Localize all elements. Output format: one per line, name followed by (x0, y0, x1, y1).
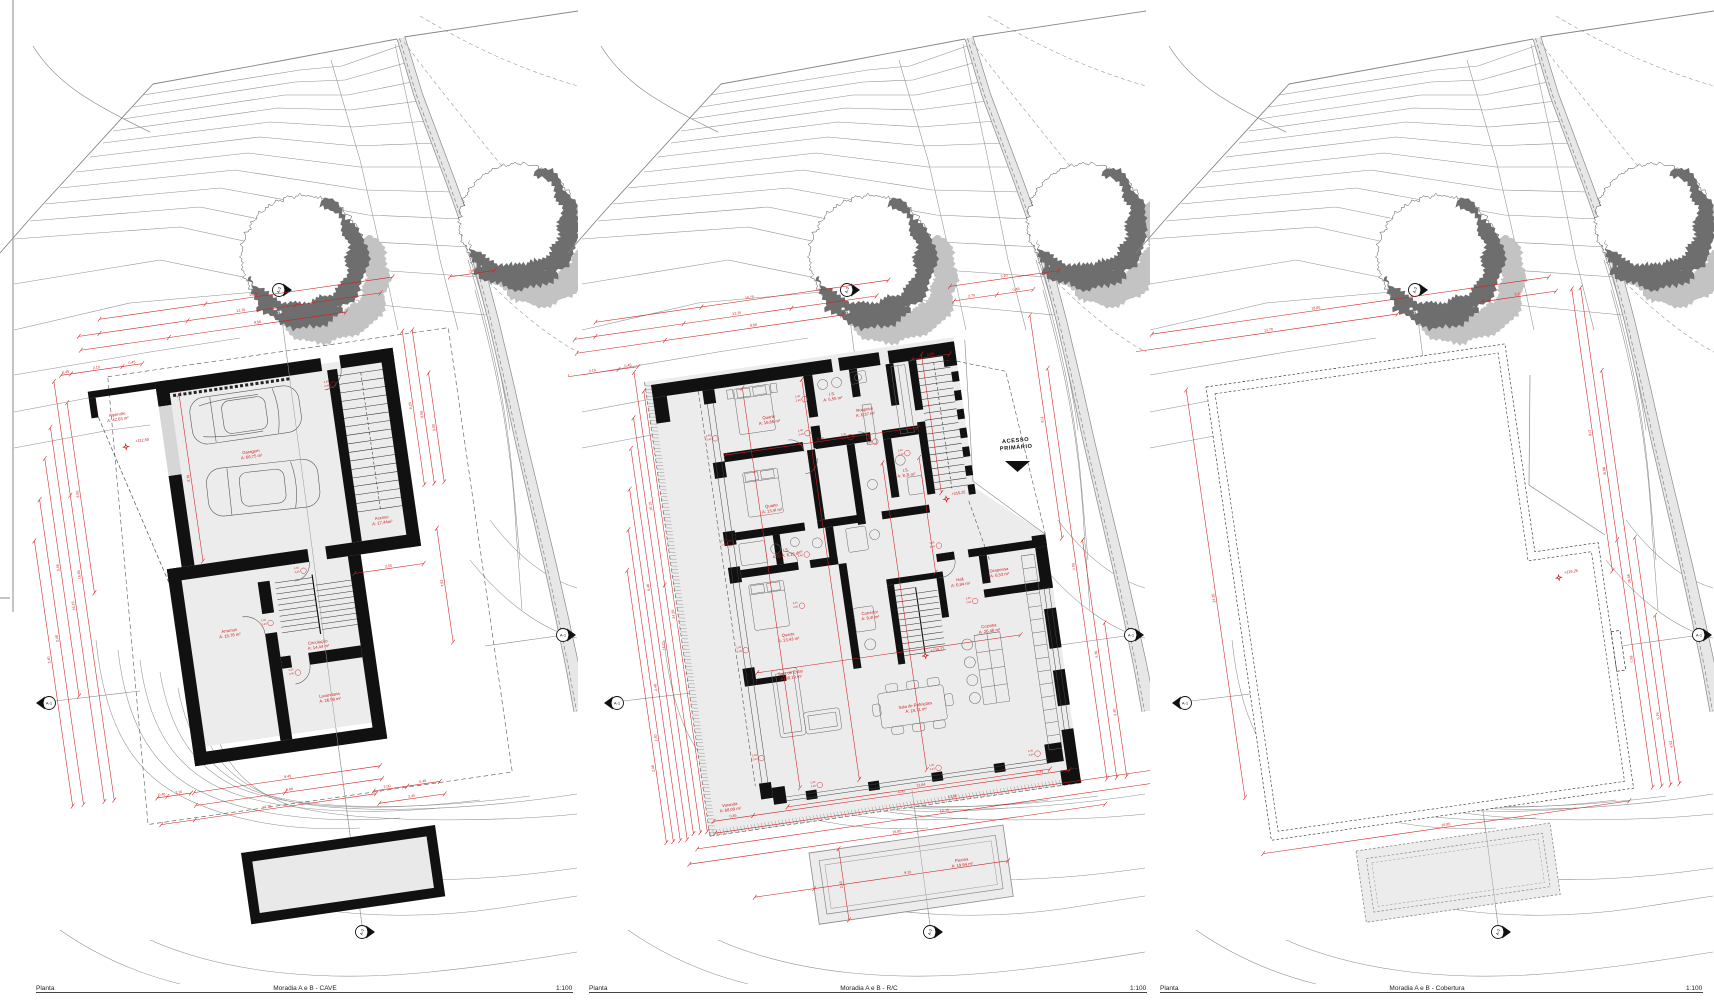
svg-text:Planta: Planta (1160, 985, 1179, 992)
svg-text:Planta: Planta (589, 985, 608, 992)
svg-text:Moradia A e B - R/C: Moradia A e B - R/C (840, 985, 898, 992)
svg-text:1:100: 1:100 (1130, 985, 1147, 992)
svg-text:1:100: 1:100 (1686, 985, 1703, 992)
svg-text:Moradia A e B - CAVE: Moradia A e B - CAVE (273, 985, 337, 992)
svg-text:Planta: Planta (36, 985, 55, 992)
svg-text:8,I2: 8,I2 (1588, 429, 1593, 436)
svg-text:8,I2: 8,I2 (1040, 416, 1045, 423)
svg-text:Moradia A e B - Cobertura: Moradia A e B - Cobertura (1389, 985, 1465, 992)
svg-text:1:100: 1:100 (556, 985, 573, 992)
